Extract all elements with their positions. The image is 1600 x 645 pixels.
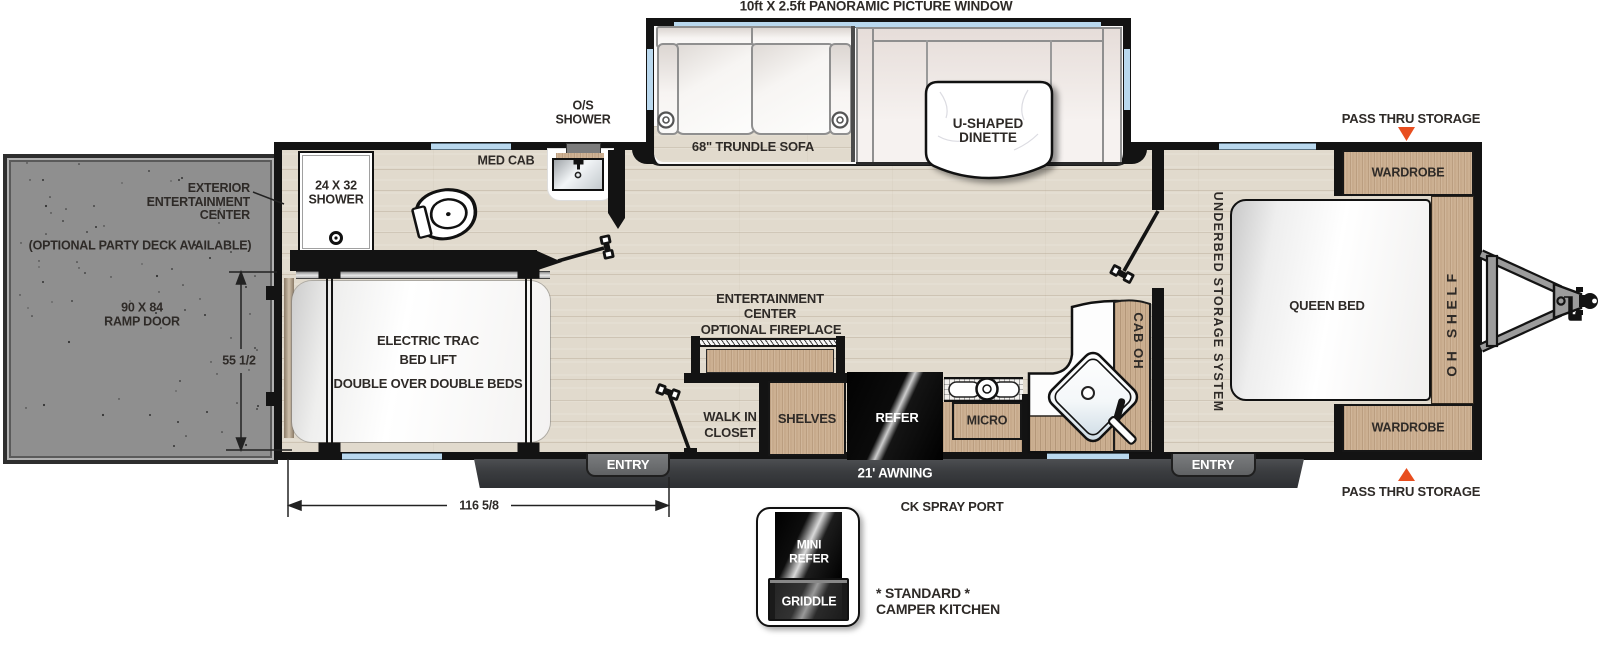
svg-text:DINETTE: DINETTE	[959, 130, 1017, 145]
svg-text:CAB OH: CAB OH	[1131, 312, 1146, 369]
svg-text:U-SHAPED: U-SHAPED	[953, 116, 1024, 131]
